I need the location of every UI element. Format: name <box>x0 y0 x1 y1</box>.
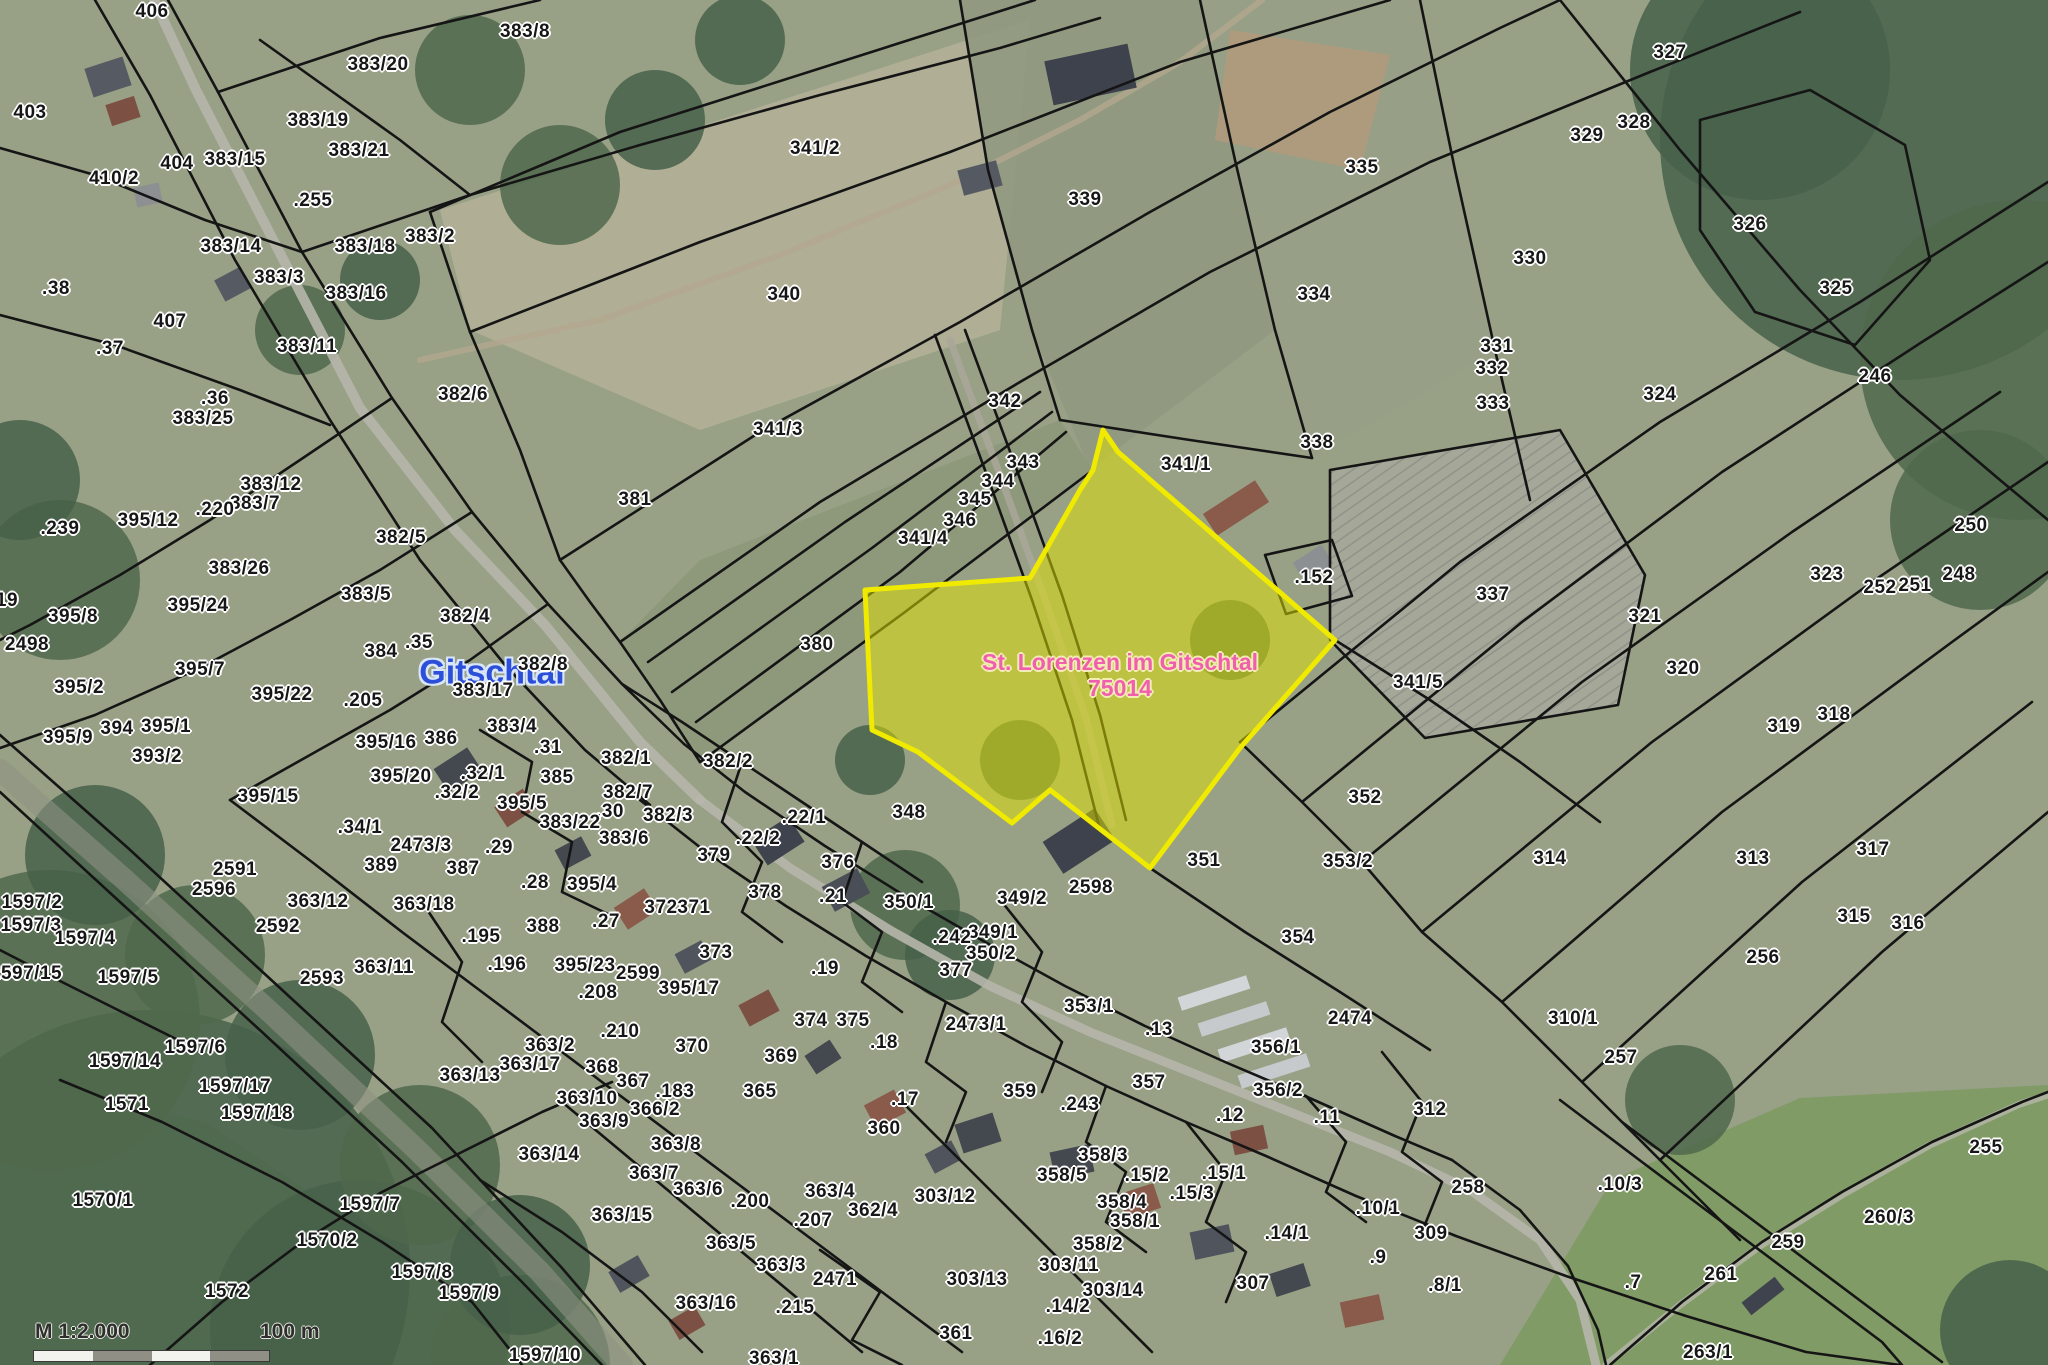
scale-bar-graphic <box>33 1350 270 1362</box>
scale-bar: M 1:2.000 100 m <box>30 1320 330 1362</box>
cadastral-map[interactable]: Gitschtal St. Lorenzen im Gitschtal 7501… <box>0 0 2048 1365</box>
scale-bar-segment <box>93 1351 152 1361</box>
map-canvas <box>0 0 2048 1365</box>
scale-distance-text: 100 m <box>260 1320 320 1344</box>
scale-bar-segment <box>152 1351 211 1361</box>
scale-bar-segment <box>34 1351 93 1361</box>
scale-bar-segment <box>210 1351 269 1361</box>
map-scale-text: M 1:2.000 <box>35 1320 130 1344</box>
